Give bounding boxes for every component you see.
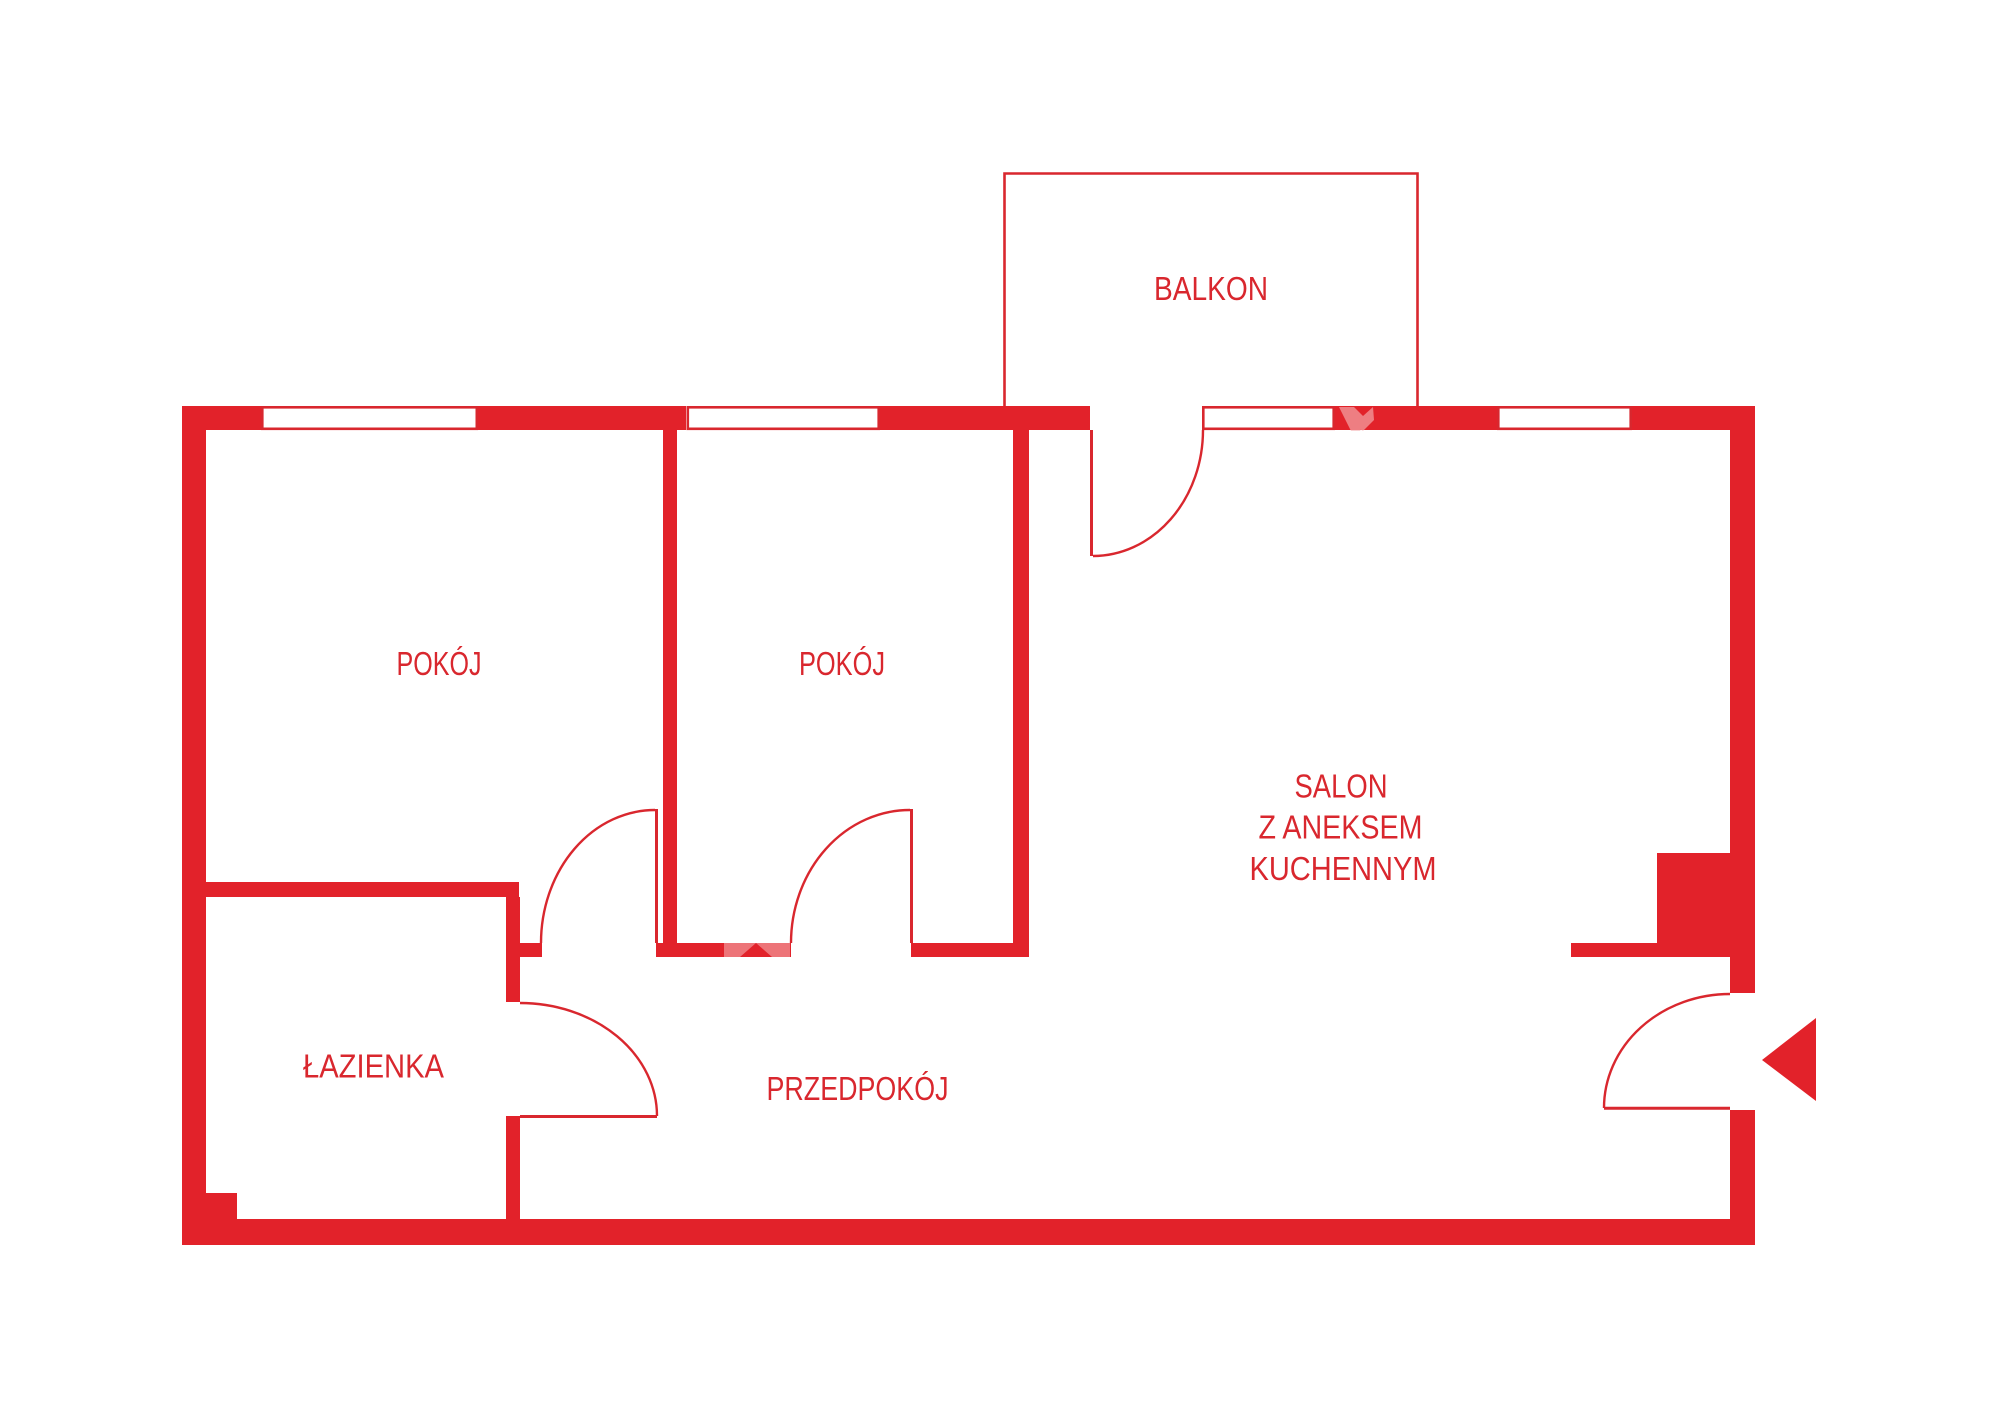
svg-text:BALKON: BALKON [1154, 270, 1268, 307]
svg-text:PRZEDPOKÓJ: PRZEDPOKÓJ [767, 1070, 949, 1107]
svg-text:SALON: SALON [1295, 768, 1388, 805]
svg-text:ŁAZIENKA: ŁAZIENKA [303, 1048, 444, 1085]
svg-text:KUCHENNYM: KUCHENNYM [1250, 850, 1437, 887]
svg-text:POKÓJ: POKÓJ [799, 645, 885, 682]
svg-text:Z ANEKSEM: Z ANEKSEM [1259, 809, 1423, 846]
svg-text:POKÓJ: POKÓJ [397, 645, 482, 682]
